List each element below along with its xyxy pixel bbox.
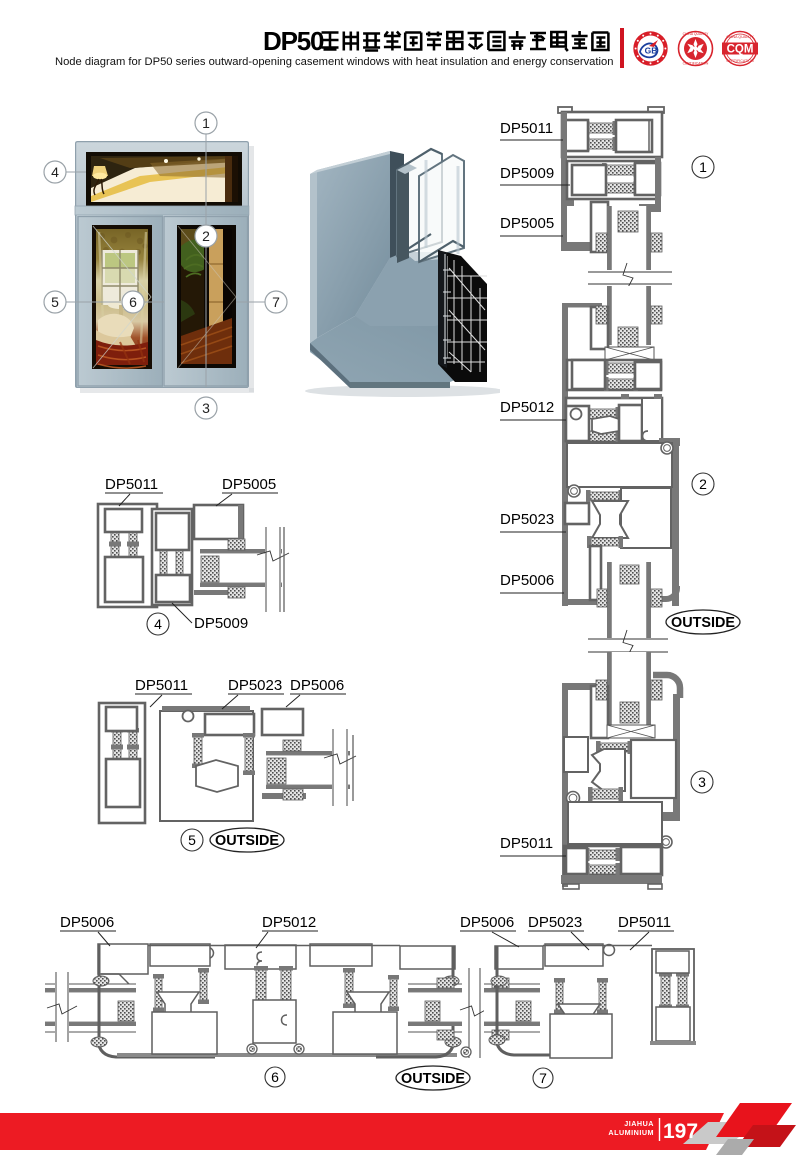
- svg-text:2: 2: [699, 476, 707, 492]
- svg-text:1: 1: [202, 115, 210, 131]
- svg-text:DP5006: DP5006: [60, 914, 114, 931]
- svg-text:DP5006: DP5006: [500, 572, 554, 589]
- svg-text:CHINA QUALITY: CHINA QUALITY: [683, 32, 710, 36]
- svg-text:5: 5: [188, 832, 196, 848]
- svg-text:3: 3: [698, 774, 706, 790]
- svg-text:5: 5: [51, 294, 59, 310]
- svg-text:DP5009: DP5009: [194, 615, 248, 632]
- svg-text:DP5011: DP5011: [105, 476, 158, 493]
- svg-text:6: 6: [271, 1069, 279, 1085]
- svg-text:DP5011: DP5011: [135, 677, 188, 694]
- svg-text:1: 1: [699, 159, 707, 175]
- svg-text:GB: GB: [645, 46, 658, 56]
- svg-text:4: 4: [154, 616, 162, 632]
- svg-text:ALUMINIUM: ALUMINIUM: [608, 1128, 654, 1137]
- svg-text:DP5009: DP5009: [500, 165, 554, 182]
- svg-text:DP5023: DP5023: [500, 511, 554, 528]
- svg-text:DP5006: DP5006: [290, 677, 344, 694]
- svg-text:6: 6: [129, 294, 137, 310]
- svg-text:CQM: CQM: [727, 43, 754, 55]
- svg-text:DP5005: DP5005: [222, 476, 276, 493]
- svg-text:7: 7: [272, 294, 280, 310]
- svg-text:DP5023: DP5023: [528, 914, 582, 931]
- svg-text:DP5005: DP5005: [500, 215, 554, 232]
- svg-text:CERTIFICATION: CERTIFICATION: [726, 59, 754, 63]
- svg-text:7: 7: [539, 1070, 547, 1086]
- svg-text:3: 3: [202, 400, 210, 416]
- svg-text:DP5011: DP5011: [618, 914, 671, 931]
- svg-text:OUTSIDE: OUTSIDE: [671, 615, 735, 631]
- svg-text:DP5012: DP5012: [262, 914, 316, 931]
- svg-text:DP5006: DP5006: [460, 914, 514, 931]
- svg-text:OUTSIDE: OUTSIDE: [215, 833, 279, 849]
- svg-text:197: 197: [663, 1120, 698, 1143]
- svg-text:DP5012: DP5012: [500, 399, 554, 416]
- svg-text:4: 4: [51, 164, 59, 180]
- svg-text:DP5023: DP5023: [228, 677, 282, 694]
- svg-text:2: 2: [202, 228, 210, 244]
- svg-text:CHINA QUALITY: CHINA QUALITY: [726, 35, 754, 39]
- svg-text:DP5011: DP5011: [500, 120, 553, 137]
- svg-text:DP5011: DP5011: [500, 835, 553, 852]
- svg-text:CERTIFICATION: CERTIFICATION: [683, 62, 709, 66]
- svg-text:JIAHUA: JIAHUA: [624, 1119, 654, 1128]
